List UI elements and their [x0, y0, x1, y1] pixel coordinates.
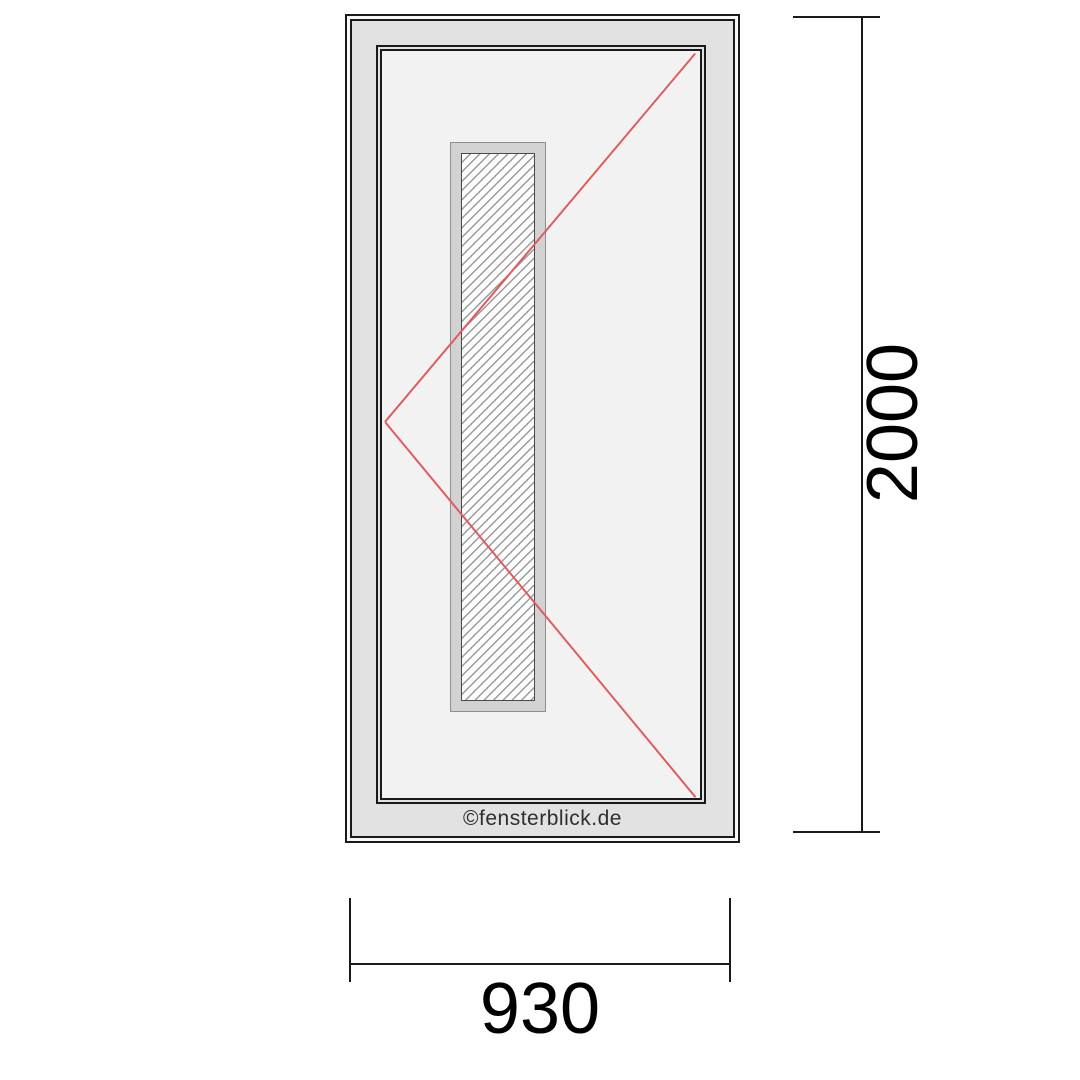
door-elevation-diagram: ©fensterblick.de 2000 930 — [0, 0, 1080, 1080]
door-frame — [350, 19, 735, 838]
glazing-bead-frame — [450, 142, 546, 712]
door-sash — [380, 49, 702, 800]
height-extension-line-top — [793, 16, 880, 18]
door-outer-frame — [345, 14, 740, 843]
width-dimension-label: 930 — [480, 973, 600, 1045]
height-extension-line-bottom — [793, 831, 880, 833]
width-dimension-line — [349, 963, 731, 965]
height-dimension-label: 2000 — [857, 343, 929, 503]
glazing-hatched-glass — [461, 153, 535, 701]
width-extension-line-left — [349, 898, 351, 982]
width-extension-line-right — [729, 898, 731, 982]
watermark-label: ©fensterblick.de — [345, 805, 740, 832]
